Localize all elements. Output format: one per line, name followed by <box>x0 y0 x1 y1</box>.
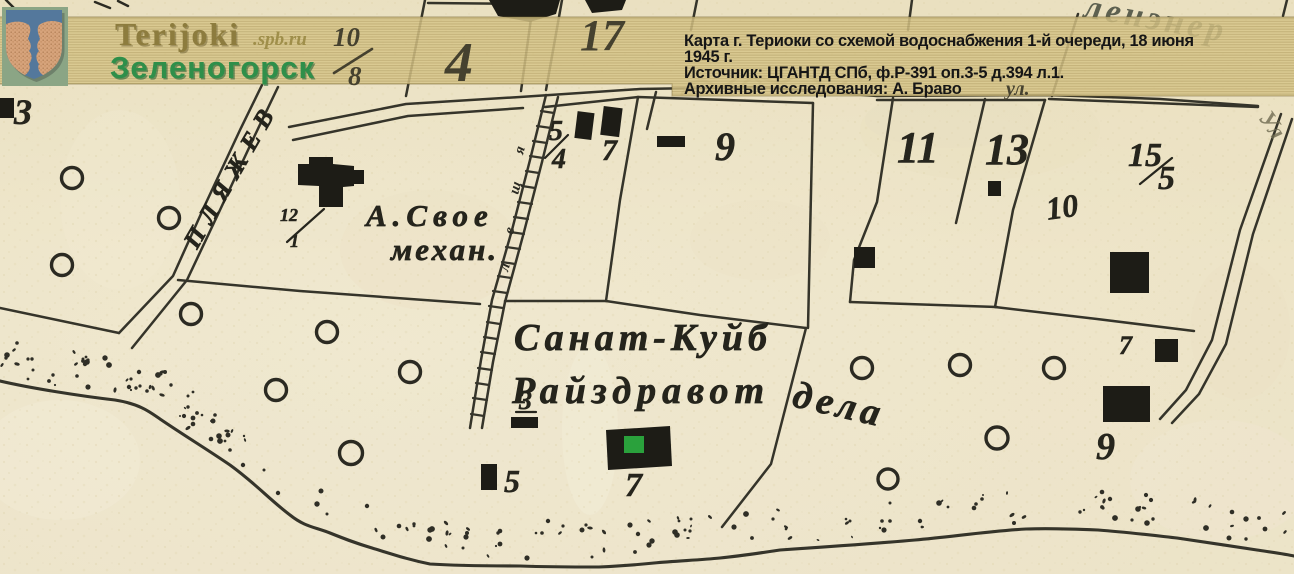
svg-text:Санат-Куйб: Санат-Куйб <box>514 317 772 359</box>
svg-text:7: 7 <box>1119 331 1133 360</box>
svg-text:механ.: механ. <box>389 232 499 267</box>
svg-text:9: 9 <box>715 124 735 169</box>
svg-text:11: 11 <box>897 123 939 172</box>
svg-text:Райздравот: Райздравот <box>511 370 770 412</box>
svg-text:12: 12 <box>280 205 298 225</box>
svg-text:15: 15 <box>1128 137 1162 174</box>
svg-text:Карта г. Териоки со схемой вод: Карта г. Териоки со схемой водоснабжения… <box>684 32 1194 50</box>
svg-text:Архивные исследования: А. Брав: Архивные исследования: А. Браво <box>684 80 962 98</box>
svg-text:3: 3 <box>13 92 32 132</box>
svg-text:А.Свое: А.Свое <box>364 198 494 233</box>
svg-text:10: 10 <box>333 22 361 52</box>
svg-text:8: 8 <box>348 61 362 91</box>
svg-text:7: 7 <box>602 134 618 167</box>
svg-text:7: 7 <box>625 467 644 504</box>
svg-text:Зеленогорск: Зеленогорск <box>110 50 315 85</box>
svg-text:5: 5 <box>504 463 520 499</box>
svg-text:10: 10 <box>1044 187 1081 227</box>
svg-text:.spb.ru: .spb.ru <box>253 29 307 50</box>
svg-text:13: 13 <box>985 125 1029 174</box>
svg-text:4: 4 <box>444 32 473 94</box>
svg-text:17: 17 <box>580 11 626 60</box>
svg-text:Terijoki: Terijoki <box>115 16 240 52</box>
svg-text:9: 9 <box>1096 426 1115 468</box>
svg-text:5: 5 <box>1158 160 1175 197</box>
